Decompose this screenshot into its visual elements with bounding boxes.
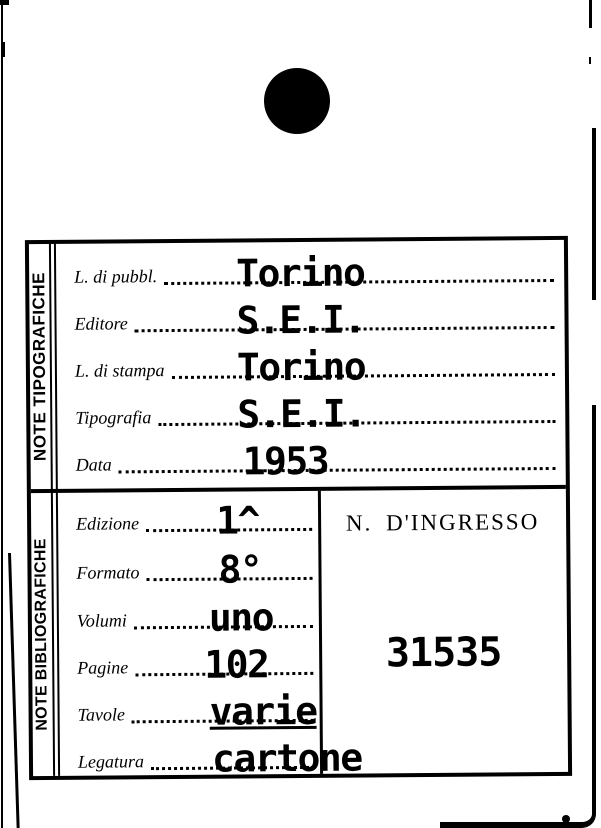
field-value: S.E.I. bbox=[237, 394, 366, 433]
scan-artifact-top-left-mark bbox=[0, 0, 9, 5]
section-side-label-tipografiche: NOTE TIPOGRAFICHE bbox=[29, 244, 51, 489]
field-label: Edizione bbox=[76, 514, 146, 533]
field-row-editore: Editore S.E.I. bbox=[74, 307, 554, 333]
field-value: S.E.I. bbox=[236, 300, 365, 339]
scan-artifact-right-dash bbox=[589, 57, 591, 64]
field-row-legatura: Legatura cartone bbox=[78, 747, 314, 771]
catalog-card-table: NOTE TIPOGRAFICHE NOTE BIBLIOGRAFICHE L.… bbox=[25, 236, 572, 780]
field-label: Volumi bbox=[77, 611, 134, 629]
field-label: Formato bbox=[76, 563, 146, 582]
field-label: L. di stampa bbox=[75, 361, 172, 380]
section-side-label-bibliografiche: NOTE BIBLIOGRAFICHE bbox=[31, 493, 53, 776]
field-row-formato: Formato 8° bbox=[76, 558, 312, 582]
scan-artifact-edge-gap bbox=[588, 300, 601, 405]
scan-artifact-ink-dot bbox=[562, 815, 570, 823]
scan-artifact-left-slanted-line bbox=[8, 553, 20, 828]
scan-artifact-left-mark bbox=[1, 42, 5, 57]
field-value: 8° bbox=[218, 550, 261, 588]
field-row-l-di-stampa: L. di stampa Torino bbox=[75, 354, 555, 380]
field-label: Legatura bbox=[78, 752, 151, 771]
ingresso-number: 31535 bbox=[322, 632, 565, 674]
field-row-pagine: Pagine 102 bbox=[77, 653, 313, 677]
hole-punch-mark bbox=[264, 68, 330, 134]
field-label: Tipografia bbox=[75, 408, 158, 427]
field-row-edizione: Edizione 1^ bbox=[76, 509, 312, 533]
field-row-data: Data 1953 bbox=[76, 448, 556, 474]
scanned-catalog-card-page: NOTE TIPOGRAFICHE NOTE BIBLIOGRAFICHE L.… bbox=[0, 0, 601, 828]
field-label: L. di pubbl. bbox=[74, 267, 164, 286]
section-divider-line bbox=[31, 485, 566, 493]
field-row-volumi: Volumi uno bbox=[77, 606, 313, 630]
ingresso-header: N. D'INGRESSO bbox=[321, 510, 564, 535]
field-dotted-line bbox=[119, 467, 556, 473]
field-row-tavole: Tavole varie bbox=[78, 700, 314, 724]
field-label: Editore bbox=[74, 314, 134, 332]
scan-artifact-right-top-line bbox=[589, 0, 592, 28]
field-value: 102 bbox=[204, 645, 268, 684]
field-row-l-di-pubbl: L. di pubbl. Torino bbox=[74, 260, 554, 286]
field-label: Pagine bbox=[77, 658, 135, 676]
field-value: uno bbox=[209, 598, 273, 637]
field-label: Tavole bbox=[78, 705, 132, 723]
field-value: Torino bbox=[237, 347, 366, 386]
field-value: Torino bbox=[236, 253, 365, 292]
field-value: 1953 bbox=[242, 442, 328, 481]
field-label: Data bbox=[76, 455, 119, 473]
field-row-tipografia: Tipografia S.E.I. bbox=[75, 401, 555, 427]
field-value: varie bbox=[209, 692, 316, 731]
scan-artifact-left-edge-line bbox=[1, 0, 3, 828]
field-value: cartone bbox=[212, 739, 362, 778]
field-value: 1^ bbox=[216, 501, 259, 539]
